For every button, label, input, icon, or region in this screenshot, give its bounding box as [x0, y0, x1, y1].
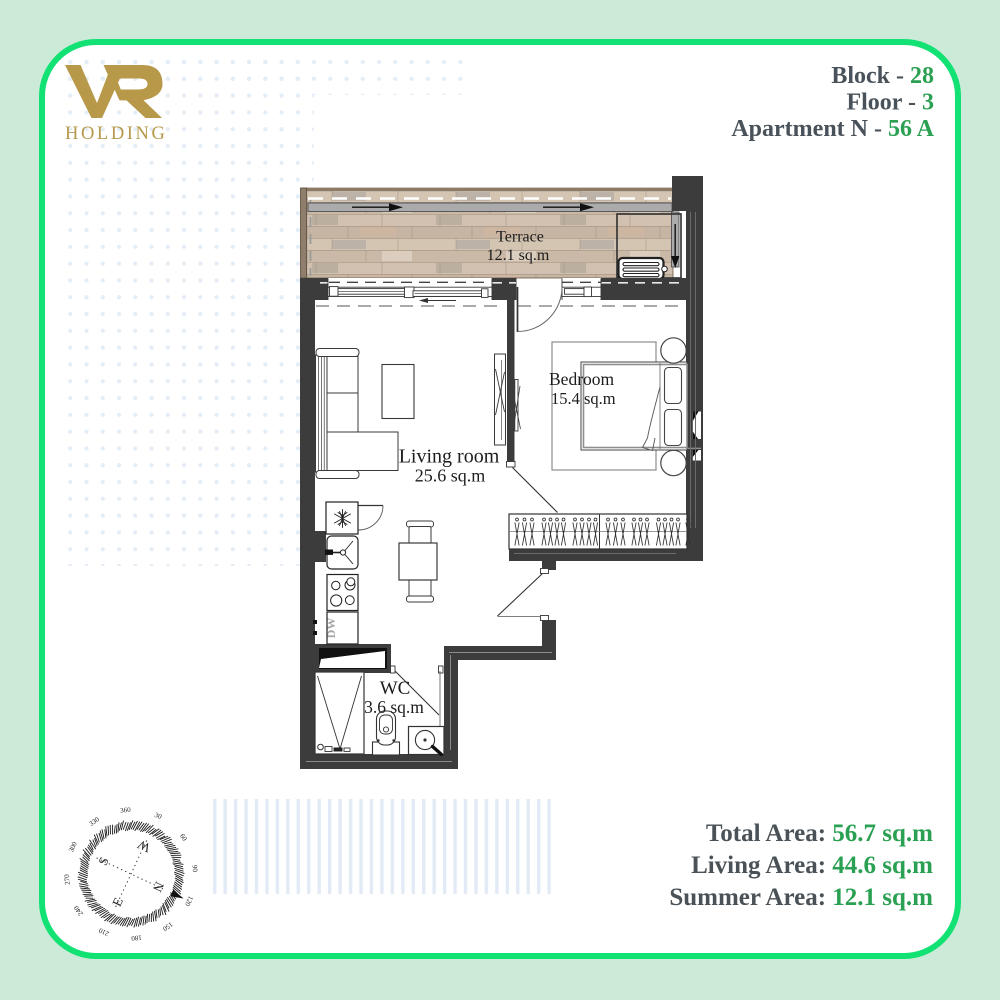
svg-text:15.4 sq.m: 15.4 sq.m — [551, 389, 616, 408]
svg-text:WC: WC — [380, 678, 411, 699]
svg-text:Summer Area: 12.1 sq.m: Summer Area: 12.1 sq.m — [669, 884, 933, 911]
svg-text:180: 180 — [130, 933, 142, 942]
svg-text:360: 360 — [120, 806, 132, 815]
svg-text:12.1 sq.m: 12.1 sq.m — [487, 247, 550, 264]
svg-text:Block - 28: Block - 28 — [831, 63, 934, 89]
svg-text:Apartment N - 56 A: Apartment N - 56 A — [731, 116, 934, 142]
svg-text:3.6 sq.m: 3.6 sq.m — [364, 697, 424, 717]
svg-text:Living room: Living room — [399, 446, 500, 468]
svg-text:Floor - 3: Floor - 3 — [846, 90, 934, 116]
svg-text:270: 270 — [63, 873, 72, 885]
svg-text:Total Area: 56.7 sq.m: Total Area: 56.7 sq.m — [706, 820, 933, 847]
svg-text:DW: DW — [324, 618, 338, 639]
svg-text:Bedroom: Bedroom — [549, 369, 615, 389]
svg-text:90: 90 — [190, 865, 199, 873]
svg-text:Terrace: Terrace — [496, 229, 544, 246]
svg-text:25.6 sq.m: 25.6 sq.m — [415, 466, 486, 486]
svg-text:Living Area: 44.6 sq.m: Living Area: 44.6 sq.m — [691, 852, 933, 879]
svg-text:HOLDING: HOLDING — [65, 124, 167, 144]
